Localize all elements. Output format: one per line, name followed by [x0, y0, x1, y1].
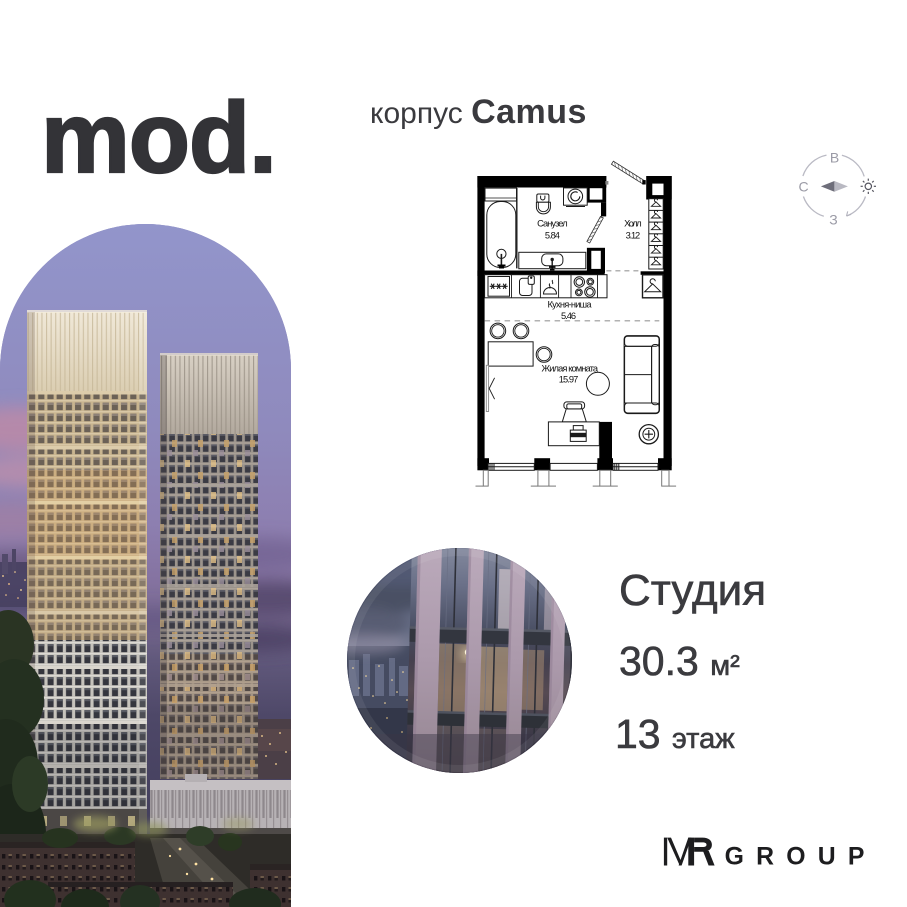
svg-text:Кухня-ниша: Кухня-ниша — [548, 299, 593, 309]
svg-text:С: С — [798, 178, 808, 194]
svg-text:Жилая комната: Жилая комната — [542, 364, 599, 374]
svg-text:З: З — [829, 212, 837, 228]
svg-text:5.84: 5.84 — [545, 230, 560, 240]
svg-text:Санузел: Санузел — [537, 218, 568, 228]
svg-text:3.12: 3.12 — [626, 231, 641, 241]
svg-text:Холл: Холл — [624, 219, 642, 229]
svg-text:5.46: 5.46 — [561, 311, 576, 321]
svg-text:В: В — [830, 150, 839, 166]
svg-text:GROUP: GROUP — [725, 843, 865, 870]
svg-text:15.97: 15.97 — [559, 375, 579, 385]
